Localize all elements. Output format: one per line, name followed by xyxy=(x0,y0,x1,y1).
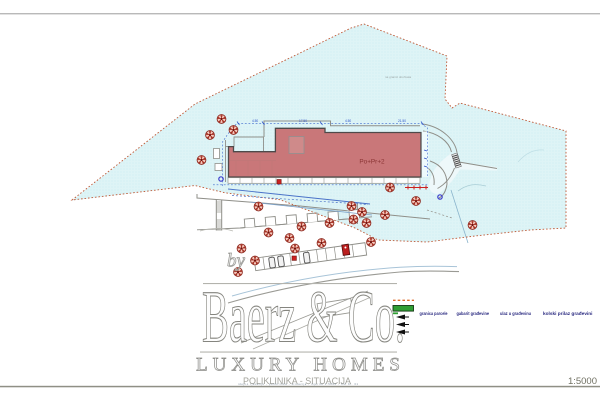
svg-text:17.50: 17.50 xyxy=(299,119,307,123)
svg-text:kolski prilaz građevini: kolski prilaz građevini xyxy=(543,311,593,317)
svg-text:by: by xyxy=(227,251,246,272)
svg-text:na granici obuhvata: na granici obuhvata xyxy=(385,75,412,79)
svg-text:4.50: 4.50 xyxy=(345,119,351,123)
svg-text:ulaz u građevinu: ulaz u građevinu xyxy=(500,311,531,317)
svg-text:1:5000: 1:5000 xyxy=(568,376,597,387)
svg-text:4.50: 4.50 xyxy=(252,119,258,123)
svg-text:21.50: 21.50 xyxy=(398,119,406,123)
svg-text:granica parcele: granica parcele xyxy=(420,311,448,317)
svg-text:Po+Pr+2: Po+Pr+2 xyxy=(359,159,385,166)
svg-text:Baerz & Co.: Baerz & Co. xyxy=(202,277,405,359)
svg-text:gabarit građevine: gabarit građevine xyxy=(457,311,490,317)
svg-text:idejno rjesenje - poliklinika: idejno rjesenje - poliklinika - situacij… xyxy=(238,382,359,386)
